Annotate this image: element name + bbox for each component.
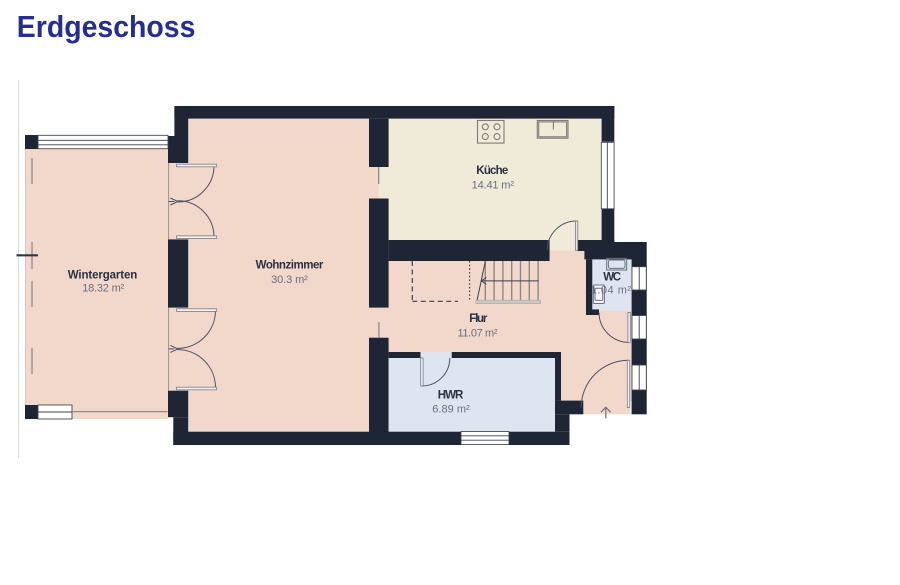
svg-text:30.3 m²: 30.3 m² [271,274,308,286]
svg-text:6.89 m²: 6.89 m² [432,403,470,415]
svg-text:Wintergarten: Wintergarten [68,270,138,282]
svg-text:Flur: Flur [469,313,488,325]
svg-text:WC: WC [603,271,621,283]
svg-text:Küche: Küche [476,165,508,177]
svg-text:14.41 m²: 14.41 m² [472,179,515,191]
svg-text:18.32 m²: 18.32 m² [82,283,124,295]
svg-text:11.07 m²: 11.07 m² [458,327,498,339]
svg-text:Wohnzimmer: Wohnzimmer [256,260,324,272]
svg-text:1.04 m²: 1.04 m² [591,284,632,296]
svg-text:HWR: HWR [438,390,464,402]
svg-text:Erdgeschoss: Erdgeschoss [17,9,196,44]
